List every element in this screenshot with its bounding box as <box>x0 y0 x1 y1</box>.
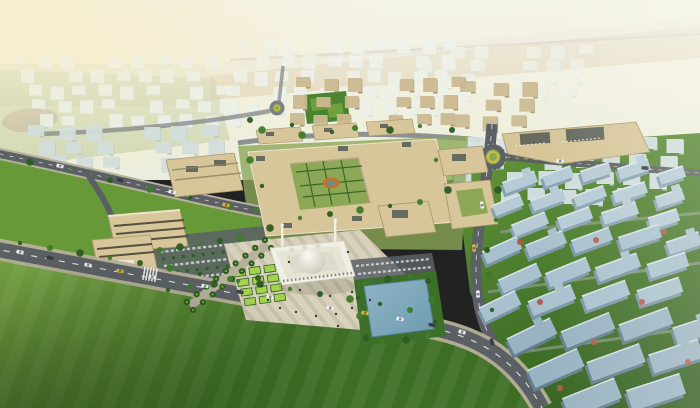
warm-haze-topleft <box>0 0 380 160</box>
car-windshield <box>431 323 434 326</box>
car <box>480 201 484 209</box>
tree <box>266 224 274 232</box>
car-windshield <box>481 204 484 207</box>
masterplan-render-canvas <box>0 0 700 408</box>
tree <box>417 199 423 205</box>
aerial-masterplan-screenshot <box>0 0 700 408</box>
tree <box>494 186 502 194</box>
tree <box>425 333 431 339</box>
building <box>454 114 469 127</box>
pedestrian <box>351 291 353 293</box>
tree <box>485 271 493 279</box>
tree <box>407 307 413 313</box>
tree <box>408 274 412 278</box>
building <box>460 81 475 92</box>
tree <box>490 308 494 312</box>
building <box>400 79 414 91</box>
campus-building-east-1 <box>438 146 488 176</box>
tree <box>356 206 364 214</box>
car <box>476 290 480 297</box>
building <box>417 114 431 124</box>
flowering-tree <box>517 239 523 245</box>
tree <box>494 218 498 222</box>
campus-building-southeast <box>378 201 436 237</box>
tree <box>346 295 354 303</box>
pedestrian <box>347 251 349 253</box>
tree <box>146 185 154 193</box>
pedestrian <box>351 307 353 309</box>
tree <box>253 207 259 213</box>
reflecting-pool <box>364 279 434 337</box>
minaret-right-cap <box>334 218 337 221</box>
tree <box>363 280 369 286</box>
tree <box>363 335 369 341</box>
car-windshield <box>399 317 402 320</box>
tree <box>484 247 490 253</box>
tree <box>298 216 302 220</box>
tree <box>386 126 394 134</box>
campus-building-east-2 <box>444 180 498 229</box>
tree <box>428 296 436 304</box>
car-windshield <box>477 293 480 295</box>
building <box>519 99 534 112</box>
building <box>420 96 434 108</box>
tree <box>425 278 431 284</box>
tree <box>380 340 384 344</box>
corner-vignette <box>0 240 340 408</box>
tree <box>68 169 72 173</box>
courtyard-fountain <box>327 181 334 186</box>
tree <box>356 296 360 300</box>
building <box>441 113 455 125</box>
tree <box>402 336 410 344</box>
building <box>511 115 526 126</box>
building <box>494 83 509 96</box>
building <box>397 97 411 107</box>
pedestrian <box>369 299 371 301</box>
tree <box>327 211 333 217</box>
tree <box>378 302 382 306</box>
building <box>423 78 437 92</box>
building <box>486 100 501 111</box>
tree <box>418 124 422 128</box>
tree <box>188 196 192 200</box>
car-windshield <box>364 311 367 314</box>
tree <box>384 275 392 283</box>
tree <box>449 127 455 133</box>
tree <box>107 177 113 183</box>
tree <box>388 204 392 208</box>
car-windshield <box>473 247 476 250</box>
building <box>444 95 458 109</box>
right-light-bloom <box>540 0 700 408</box>
building <box>522 82 537 97</box>
tree <box>434 158 438 162</box>
car <box>472 244 476 251</box>
minaret-left-cap <box>281 223 284 226</box>
tree <box>444 186 452 194</box>
tree <box>260 184 264 188</box>
